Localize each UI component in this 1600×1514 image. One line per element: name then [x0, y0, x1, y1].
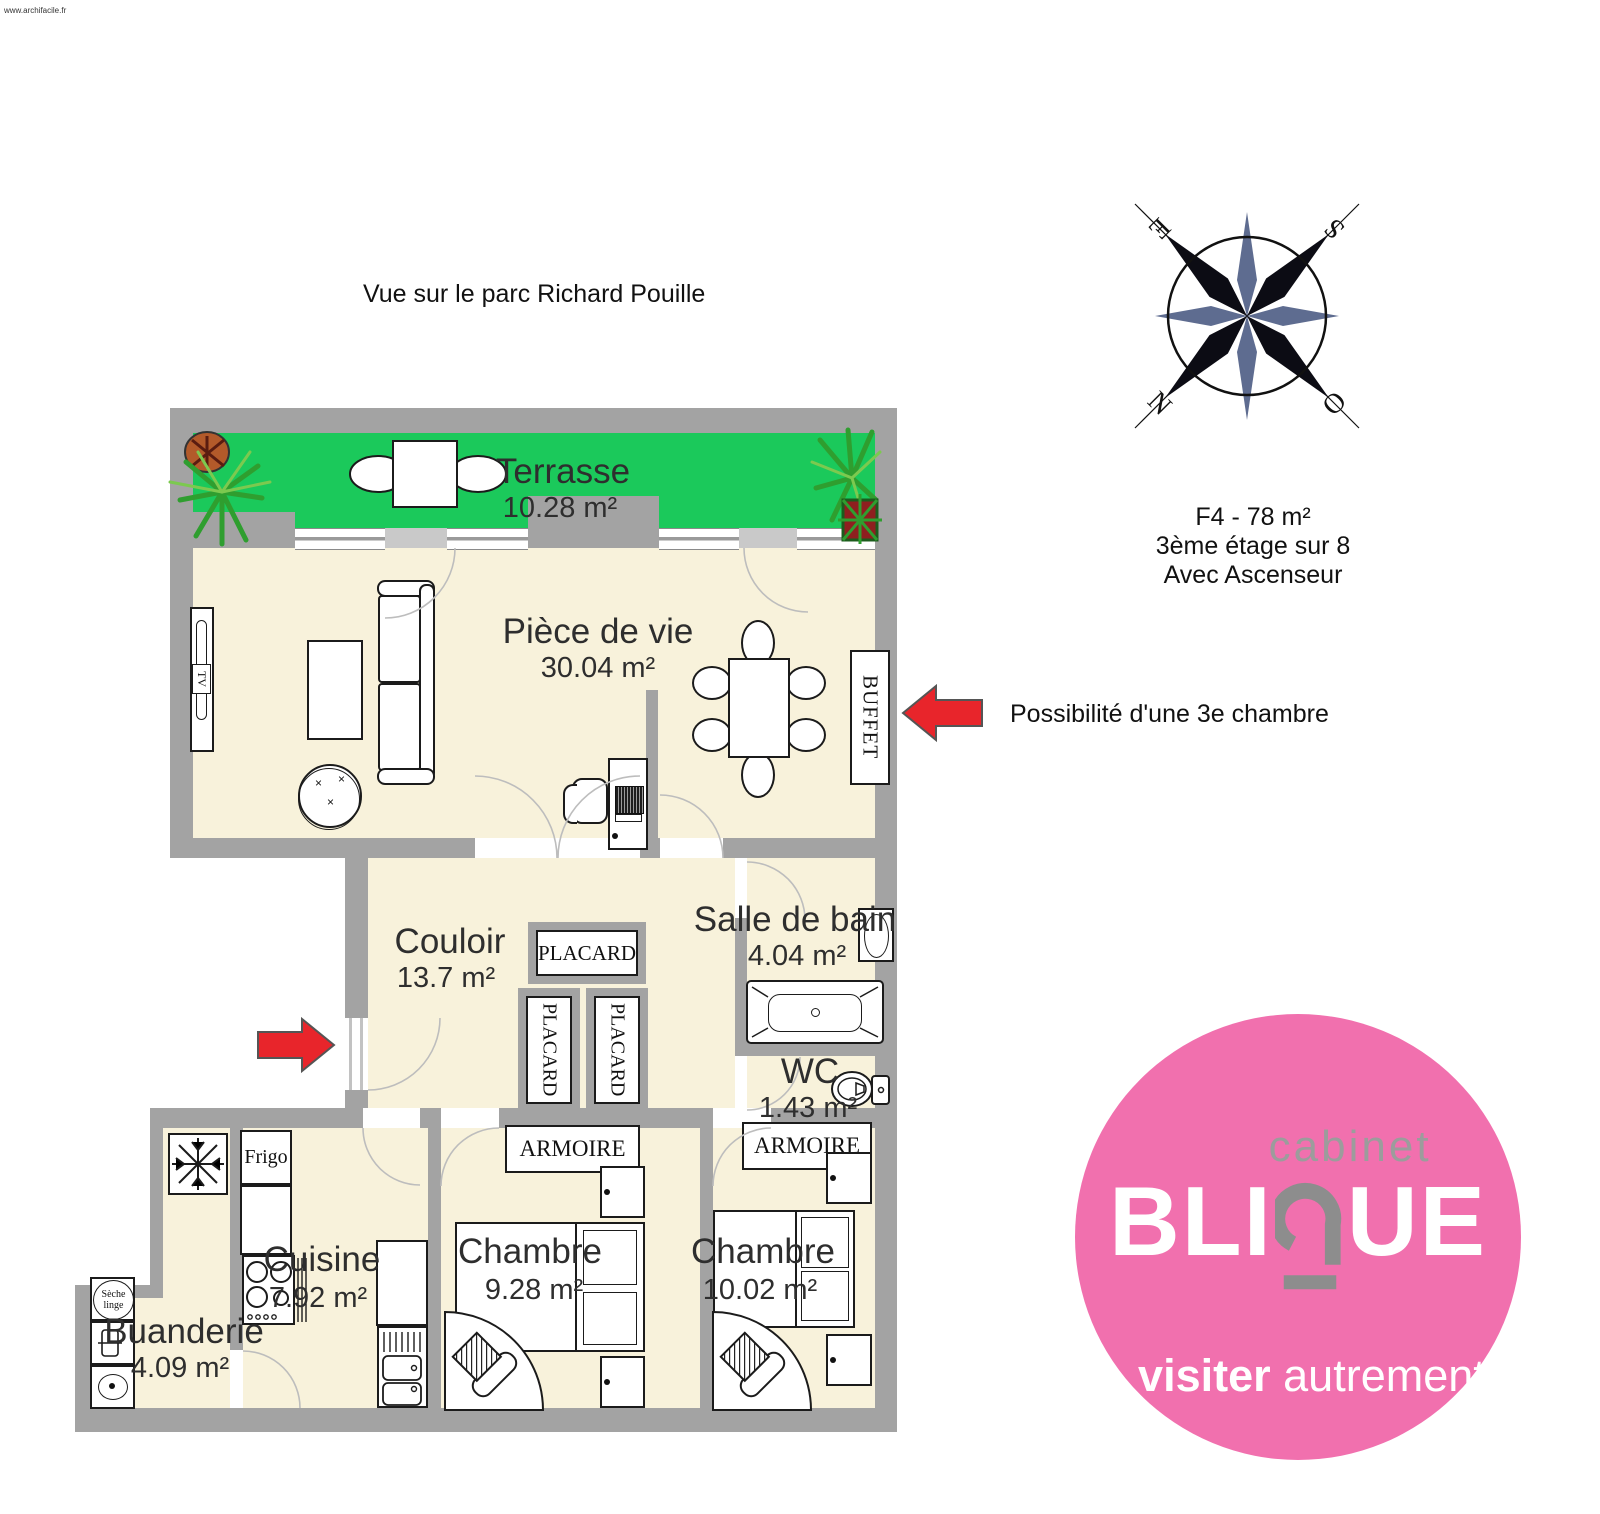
- area-chambre2: 10.02 m²: [703, 1274, 817, 1307]
- nightstand-knob: [830, 1175, 836, 1181]
- info-floor: 3ème étage sur 8: [1156, 532, 1351, 561]
- agency-logo: cabinet BLI UE visiter autrement: [1075, 1014, 1521, 1460]
- wall-step-vertical: [150, 1108, 163, 1298]
- view-note: Vue sur le parc Richard Pouille: [363, 280, 705, 309]
- area-salle-de-bain: 4.04 m²: [748, 940, 846, 973]
- placard-h: PLACARD: [536, 930, 638, 976]
- doorway-kitchen: [363, 1108, 420, 1128]
- logo-tagline-light: autrement: [1283, 1350, 1486, 1401]
- wall-living-bottom-a: [193, 838, 475, 858]
- laptop: [615, 786, 644, 814]
- wall-top: [170, 408, 897, 433]
- label-buanderie: Buanderie: [104, 1312, 264, 1352]
- logo-brand: BLI UE: [1109, 1172, 1487, 1313]
- nightstand-knob: [604, 1189, 610, 1195]
- logo-brand-right: UE: [1347, 1172, 1487, 1270]
- kitchen-sink-unit: [377, 1326, 428, 1408]
- terrace-parapet-left: [188, 512, 295, 548]
- logo-brand-left: BLI: [1109, 1172, 1273, 1270]
- label-chambre1: Chambre: [458, 1232, 602, 1272]
- pouf-mark: ×: [338, 772, 345, 786]
- sofa-cushion-1: [378, 595, 421, 683]
- office-chair-back: [563, 784, 577, 824]
- label-wc: WC: [781, 1052, 839, 1092]
- wall-bottom: [75, 1408, 897, 1432]
- info-type-surface: F4 - 78 m²: [1156, 503, 1351, 532]
- wall-living-bottom-c: [723, 838, 875, 858]
- sofa-cushion-2: [378, 683, 421, 771]
- dryer-label-1: Sèche: [102, 1289, 126, 1300]
- area-terrasse: 10.28 m²: [503, 492, 617, 525]
- listing-info: F4 - 78 m² 3ème étage sur 8 Avec Ascense…: [1156, 503, 1351, 590]
- window-terrace-2: [447, 528, 528, 550]
- area-buanderie: 4.09 m²: [131, 1352, 229, 1385]
- terrace-pier-b: [739, 528, 797, 548]
- floorplan-page: www.archifacile.fr Vue sur le parc Richa…: [0, 0, 1600, 1514]
- tv-label: TV: [192, 664, 211, 694]
- watermark: www.archifacile.fr: [4, 6, 66, 15]
- window-terrace-4: [797, 528, 875, 550]
- wall-bottomrow-a: [420, 1108, 441, 1128]
- label-cuisine: Cuisine: [264, 1240, 381, 1280]
- annotation-3e-chambre: Possibilité d'une 3e chambre: [1010, 700, 1329, 729]
- sofa-backrest: [419, 584, 435, 780]
- doorway-wc: [735, 1056, 747, 1108]
- doorway-laundry: [230, 1350, 243, 1408]
- nightstand-knob: [604, 1379, 610, 1385]
- area-cuisine: 7.92 m²: [269, 1282, 367, 1315]
- coffee-table: [307, 640, 363, 740]
- office-chair: [572, 778, 608, 824]
- placard-v2: PLACARD: [594, 996, 640, 1104]
- label-couloir: Couloir: [395, 922, 506, 962]
- label-terrasse: Terrasse: [496, 452, 630, 492]
- window-terrace-1: [295, 528, 385, 550]
- kitchen-counter-2: [376, 1240, 428, 1326]
- window-terrace-3: [659, 528, 739, 550]
- entrance-door: [345, 1018, 368, 1090]
- buffet: BUFFET: [850, 650, 890, 785]
- pouf-mark: ×: [315, 776, 322, 790]
- sofa-armrest-bottom: [377, 768, 435, 785]
- washer-dot: [109, 1383, 115, 1389]
- wall-hall-left-a: [345, 838, 368, 1018]
- wall-left-lower: [75, 1285, 90, 1432]
- wall-kitchen-bedroom1: [428, 1128, 441, 1408]
- dining-chair: [741, 752, 775, 798]
- area-chambre1: 9.28 m²: [485, 1274, 583, 1307]
- logo-q-icon: [1275, 1178, 1345, 1313]
- red-arrow-right-icon: [255, 1015, 337, 1075]
- desk-dot: [612, 833, 618, 839]
- dining-chair: [692, 718, 732, 752]
- placard-v1: PLACARD: [526, 996, 572, 1104]
- area-piece-de-vie: 30.04 m²: [541, 652, 655, 685]
- logo-cabinet-text: cabinet: [1269, 1122, 1432, 1172]
- bathtub-drain: [811, 1008, 820, 1017]
- nightstand-knob: [830, 1357, 836, 1363]
- doorway-living-hall-2: [660, 838, 723, 858]
- pillow: [583, 1292, 637, 1345]
- area-wc: 1.43 m²: [759, 1092, 857, 1125]
- area-couloir: 13.7 m²: [397, 962, 495, 995]
- label-salle-de-bain: Salle de bain: [694, 900, 896, 940]
- wall-notch-bottom: [150, 1108, 363, 1128]
- dining-chair: [786, 666, 826, 700]
- compass-rose: E S N O: [1116, 180, 1378, 452]
- pouf-mark: ×: [327, 795, 334, 809]
- terrace-pier-a: [385, 528, 447, 548]
- logo-tagline-bold: visiter: [1138, 1350, 1271, 1401]
- doorway-bedroom1: [441, 1108, 499, 1128]
- dining-table: [728, 658, 790, 758]
- laptop-keyboard: [615, 814, 642, 822]
- dining-chair: [692, 666, 732, 700]
- logo-tagline: visiter autrement: [1138, 1350, 1486, 1402]
- info-elevator: Avec Ascenseur: [1156, 561, 1351, 590]
- freezer: [168, 1133, 228, 1195]
- label-piece-de-vie: Pièce de vie: [503, 612, 694, 652]
- dining-chair: [786, 718, 826, 752]
- dryer-label-2: linge: [104, 1300, 124, 1311]
- fridge: Frigo: [240, 1130, 292, 1185]
- label-chambre2: Chambre: [691, 1232, 835, 1272]
- red-arrow-left-icon: [900, 682, 985, 744]
